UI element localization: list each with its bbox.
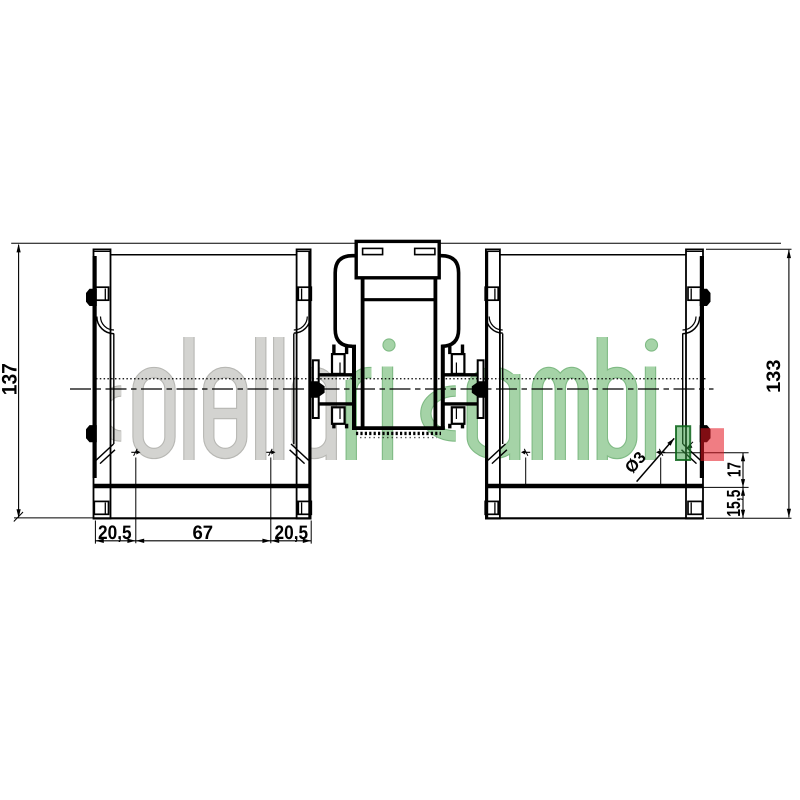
svg-text:15,5: 15,5 bbox=[724, 489, 745, 516]
svg-text:133: 133 bbox=[763, 359, 785, 393]
svg-text:20,5: 20,5 bbox=[98, 522, 132, 544]
svg-text:17: 17 bbox=[724, 462, 745, 477]
svg-text:20,5: 20,5 bbox=[275, 522, 309, 544]
svg-text:67: 67 bbox=[193, 522, 214, 544]
svg-text:137: 137 bbox=[0, 363, 22, 395]
